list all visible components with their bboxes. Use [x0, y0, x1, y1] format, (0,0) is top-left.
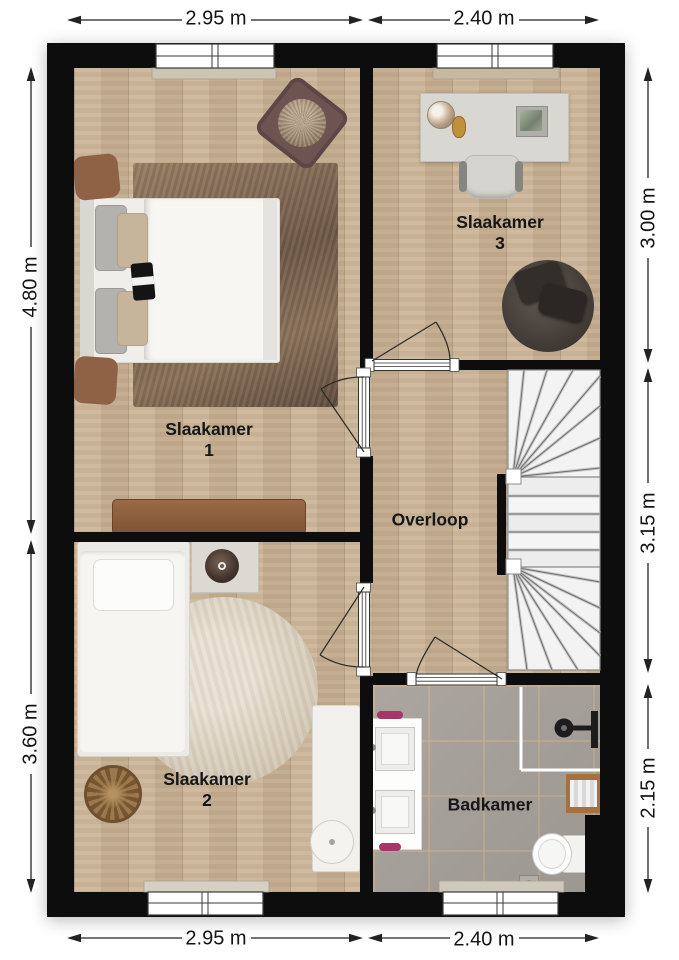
- dim-right-bedroom3: 3.00 m: [638, 187, 661, 248]
- door-bathroom: [407, 637, 506, 686]
- room-label-badkamer: Badkamer: [448, 795, 533, 816]
- window-bathroom: [439, 881, 564, 915]
- stair-newel-post: [506, 559, 521, 574]
- dim-top-bedroom1: 2.95 m: [185, 8, 246, 31]
- dim-bottom-bathroom: 2.40 m: [453, 929, 514, 952]
- room-name: Slaakamer: [163, 769, 251, 790]
- floorplan-page: { "rooms": [ {"name": "Slaakamer", "numb…: [0, 0, 679, 960]
- plan-linework: [0, 0, 679, 960]
- room-number: 2: [163, 790, 251, 811]
- dim-right-landing: 3.15 m: [638, 492, 661, 553]
- room-name: Badkamer: [448, 795, 533, 816]
- shower-head: [555, 711, 599, 748]
- room-number: 1: [165, 440, 253, 461]
- room-name: Overloop: [392, 510, 469, 531]
- room-name: Slaakamer: [456, 212, 544, 233]
- room-label-overloop: Overloop: [392, 510, 469, 531]
- door-bedroom2: [320, 583, 371, 676]
- dim-bottom-bedroom2: 2.95 m: [185, 928, 246, 951]
- room-label-slaakamer-3: Slaakamer 3: [456, 212, 544, 254]
- room-label-slaakamer-1: Slaakamer 1: [165, 419, 253, 461]
- dim-right-bathroom: 2.15 m: [638, 757, 661, 818]
- door-bedroom3: [365, 322, 459, 372]
- window-bedroom2: [144, 881, 269, 915]
- dim-left-bedroom1: 4.80 m: [20, 256, 43, 317]
- room-label-slaakamer-2: Slaakamer 2: [163, 769, 251, 811]
- stair-newel-post: [506, 469, 521, 484]
- staircase: [506, 370, 600, 670]
- dim-left-bedroom2: 3.60 m: [20, 703, 43, 764]
- room-number: 3: [456, 233, 544, 254]
- dim-top-bedroom3: 2.40 m: [453, 8, 514, 31]
- room-name: Slaakamer: [165, 419, 253, 440]
- door-bedroom1: [321, 368, 371, 457]
- window-bedroom3: [433, 44, 559, 79]
- window-bedroom1: [152, 44, 276, 79]
